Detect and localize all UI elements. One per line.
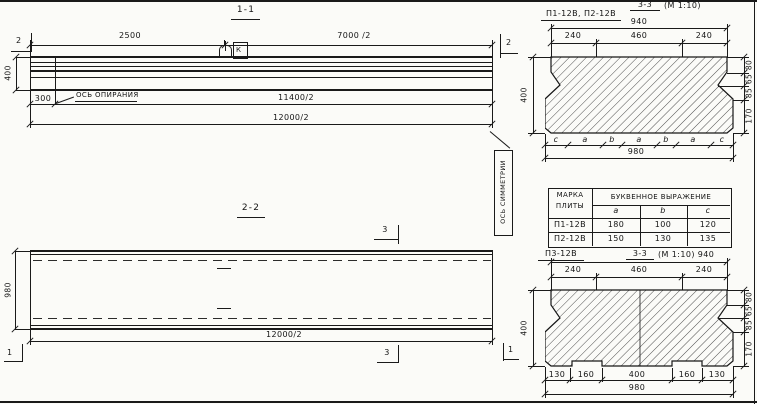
dim-line (551, 277, 727, 278)
table-col-b: b (660, 206, 665, 215)
letter-dim: c (720, 135, 725, 144)
dim-line (551, 28, 727, 29)
dim-300: 300 (35, 94, 51, 103)
dim-85: 85 (745, 88, 754, 98)
section-marker-3-top: 3 (382, 225, 388, 234)
drawing-line (30, 250, 31, 330)
drawing-line (30, 254, 492, 255)
dim-85: 85 (745, 320, 754, 330)
drawing-line (727, 57, 749, 58)
section-marker-3-bottom: 3 (384, 348, 390, 357)
dim-400b: 400 (629, 370, 645, 379)
hidden-edge-line (33, 260, 491, 261)
drawing-line (687, 205, 688, 246)
drawing-line (492, 250, 493, 330)
dim-940: 940 (631, 17, 647, 26)
drawing-line (374, 239, 398, 240)
drawing-line (30, 250, 492, 252)
dim-line (551, 43, 727, 44)
dim-400: 400 (520, 87, 529, 103)
drawing-line (30, 70, 492, 72)
letter-dim: a (582, 135, 587, 144)
dim-460: 460 (631, 265, 647, 274)
drawing-line (30, 56, 31, 91)
support-axis-label: ОСЬ ОПИРАНИЯ (76, 91, 139, 100)
letter-dim: b (609, 135, 614, 144)
drawing-line (30, 325, 492, 326)
slab-cross-section-hatched (545, 289, 735, 368)
dim-240-right: 240 (696, 31, 712, 40)
cross-top-scale: (М 1:10) (664, 1, 701, 10)
lifting-loop-icon (219, 45, 232, 58)
frame-bottom-line (0, 401, 757, 403)
support-axis-line (55, 56, 56, 104)
drawing-line (16, 57, 30, 58)
dim-line (545, 158, 733, 159)
dim-12000-2: 12000/2 (266, 330, 302, 339)
dim-130: 130 (709, 370, 725, 379)
drawing-line (533, 290, 534, 366)
dim-400: 400 (4, 65, 13, 81)
drawing-line (640, 205, 641, 246)
dim-170: 170 (745, 108, 754, 124)
dim-65: 65 (745, 74, 754, 84)
drawing-line (15, 251, 30, 252)
plate-label: П3-12В (545, 249, 577, 258)
cross-top-title: 3-3 (638, 0, 652, 9)
dim-line (545, 380, 733, 381)
section-marker-2-right: 2 (506, 38, 512, 47)
drawing-line (231, 19, 260, 20)
dim-2500: 2500 (119, 31, 141, 40)
table-cell: 100 (655, 220, 671, 229)
letter-dim: b (663, 135, 668, 144)
drawing-line (224, 40, 225, 45)
engineering-drawing: 1-1 2 2 2500 7000 /2 К (0, 0, 757, 404)
dim-80: 80 (745, 292, 754, 302)
table-cell: 130 (655, 234, 671, 243)
drawing-line (501, 53, 518, 54)
slab-cross-section-hatched (545, 56, 735, 135)
section-marker-2-left: 2 (16, 36, 22, 45)
drawing-line (237, 217, 265, 218)
center-mark (217, 268, 231, 269)
table-header-mark: МАРКА (557, 191, 584, 200)
drawing-line (541, 20, 621, 21)
dim-line (545, 394, 733, 395)
symmetry-axis-label: ОСЬ СИММЕТРИИ (499, 160, 507, 224)
drawing-line (533, 57, 534, 133)
table-header-expr: БУКВЕННОЕ ВЫРАЖЕНИЕ (611, 193, 711, 202)
dim-130: 130 (549, 370, 565, 379)
dim-160: 160 (679, 370, 695, 379)
table-col-c: c (706, 206, 711, 215)
dim-240-left: 240 (565, 31, 581, 40)
dim-11400-2: 11400/2 (278, 93, 314, 102)
table-cell: 120 (700, 220, 716, 229)
section-marker-1-right: 1 (508, 345, 514, 354)
drawing-line (545, 57, 733, 133)
table-cell-mark: П2-12В (554, 234, 586, 243)
drawing-line (15, 329, 30, 330)
dim-980: 980 (4, 282, 13, 298)
dim-line (551, 262, 727, 263)
drawing-line (626, 259, 654, 260)
drawing-line (503, 359, 519, 360)
table-cell-mark: П1-12В (554, 220, 586, 229)
dim-line (30, 45, 492, 46)
drawing-line (630, 10, 660, 11)
letter-dim: a (636, 135, 641, 144)
loop-tag: К (236, 46, 241, 55)
drawing-line (30, 77, 492, 78)
table-cell: 150 (608, 234, 624, 243)
drawing-line (30, 66, 492, 67)
letter-dim: a (690, 135, 695, 144)
dim-160: 160 (578, 370, 594, 379)
drawing-line (548, 232, 730, 233)
dim-80: 80 (745, 60, 754, 70)
drawing-line (30, 328, 492, 330)
drawing-line (398, 225, 399, 244)
cross-bottom-title: 3-3 (633, 249, 647, 258)
drawing-line (16, 90, 30, 91)
section-2-2-title: 2-2 (242, 204, 260, 213)
dim-line (545, 145, 733, 146)
hidden-edge-line (33, 318, 491, 319)
section-1-1-title: 1-1 (237, 6, 255, 15)
dim-12000-2: 12000/2 (273, 113, 309, 122)
dim-line (30, 341, 492, 342)
letter-dim: c (554, 135, 559, 144)
frame-right-line (754, 0, 755, 404)
drawing-line (490, 131, 511, 148)
dim-line (30, 124, 492, 125)
drawing-line (398, 345, 399, 363)
dim-240-right: 240 (696, 265, 712, 274)
dim-170: 170 (745, 341, 754, 357)
dim-65: 65 (745, 306, 754, 316)
drawing-line (15, 251, 16, 330)
table-cell: 180 (608, 220, 624, 229)
table-cell: 135 (700, 234, 716, 243)
plates-label: П1-12В, П2-12В (546, 9, 616, 18)
drawing-line (377, 362, 398, 363)
drawing-line (492, 56, 493, 91)
dim-line (30, 104, 492, 105)
dim-400: 400 (520, 320, 529, 336)
dim-7000-2: 7000 /2 (337, 31, 371, 40)
drawing-line (538, 260, 584, 261)
drawing-line (548, 218, 730, 219)
drawing-line (16, 57, 17, 90)
cross-bottom-scale: (М 1:10) (658, 250, 695, 259)
table-header-mark: ПЛИТЫ (556, 202, 584, 211)
dim-980: 980 (628, 147, 644, 156)
section-marker-1-left: 1 (7, 348, 13, 357)
drawing-line (592, 188, 593, 246)
dim-460: 460 (631, 31, 647, 40)
dim-980: 980 (629, 383, 645, 392)
drawing-line (4, 361, 22, 362)
beam-top-edge (30, 56, 492, 58)
drawing-line (30, 62, 492, 63)
drawing-line (11, 51, 32, 52)
table-col-a: a (613, 206, 618, 215)
drawing-line (22, 344, 23, 362)
dim-940: 940 (698, 250, 714, 259)
drawing-line (545, 290, 733, 366)
center-mark (217, 308, 231, 309)
dim-240-left: 240 (565, 265, 581, 274)
drawing-line (75, 101, 137, 102)
drawing-line (500, 34, 501, 58)
